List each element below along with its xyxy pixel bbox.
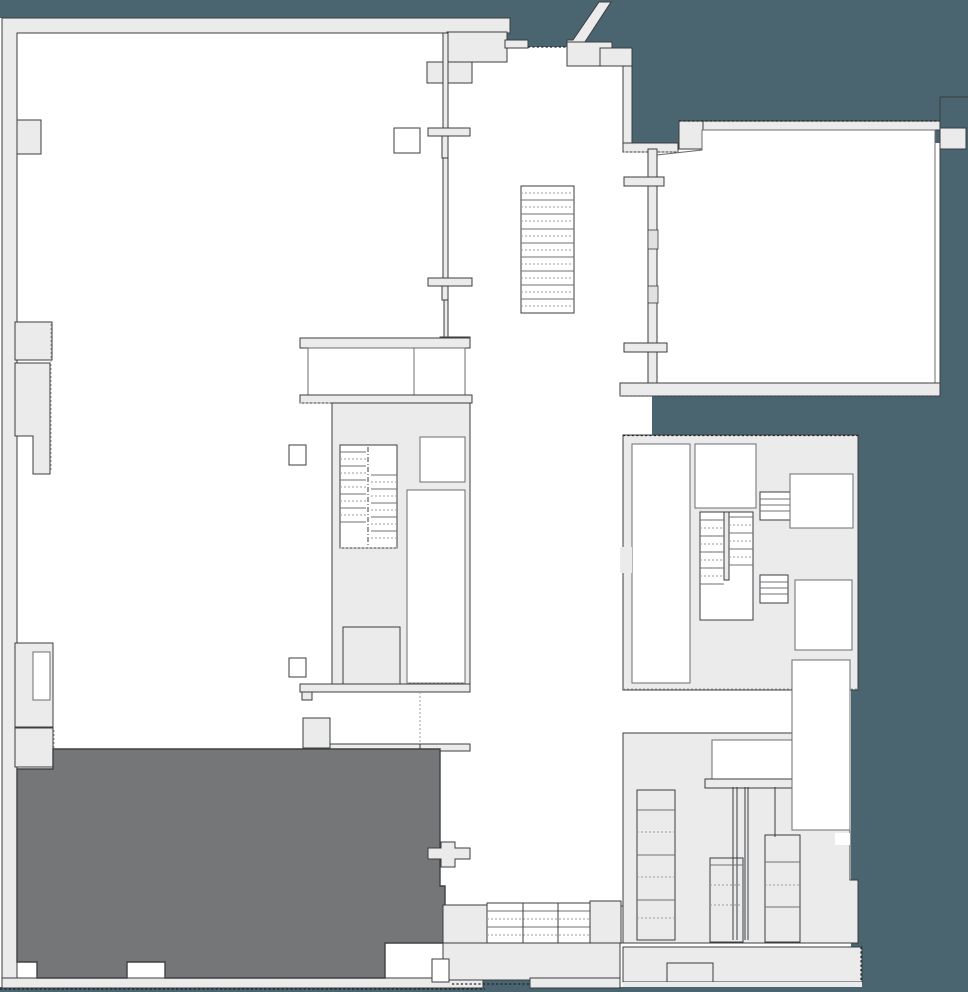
escalator-bank: [432, 901, 628, 988]
column: [394, 128, 420, 153]
left-alcove-1: [15, 322, 52, 360]
highlighted-room[interactable]: [17, 749, 470, 978]
door-lintel: [428, 278, 472, 286]
main-staircase: [521, 186, 574, 313]
door-jamb: [648, 230, 658, 249]
br-notch-room: [712, 740, 792, 780]
right-stair-core: [620, 435, 858, 690]
door-lintel: [624, 177, 664, 186]
br-room-d: [792, 660, 850, 830]
rm-small-stair-a: [760, 492, 790, 520]
door-jamb: [648, 286, 658, 303]
bottom-wall-strip: [2, 978, 483, 988]
door-lintel: [624, 343, 667, 352]
plaza: [443, 943, 620, 980]
column: [289, 658, 306, 677]
rm-room-b: [790, 474, 853, 528]
column: [432, 959, 449, 982]
room-south-wall: [620, 383, 940, 396]
core-room-a: [420, 437, 465, 482]
rm-room-c: [795, 580, 852, 650]
entry-column-wall: [623, 66, 632, 143]
central-top-room: [308, 348, 465, 395]
floor-plan: [0, 0, 968, 992]
rm-small-stair-b: [760, 575, 788, 603]
br-bottom-band: [623, 947, 862, 982]
escalator-lanes: [487, 903, 590, 943]
door-lintel: [428, 128, 470, 136]
rm-square-room: [695, 444, 756, 508]
floor-plan-viewer: [0, 0, 968, 992]
column: [289, 445, 306, 465]
left-alcove-4: [15, 728, 53, 767]
wall-pier: [17, 120, 41, 154]
upper-right-room-floor: [657, 130, 935, 383]
rm-tall-room: [632, 444, 690, 683]
left-alcove-3-pocket: [33, 652, 50, 700]
core-room-b: [407, 490, 465, 683]
